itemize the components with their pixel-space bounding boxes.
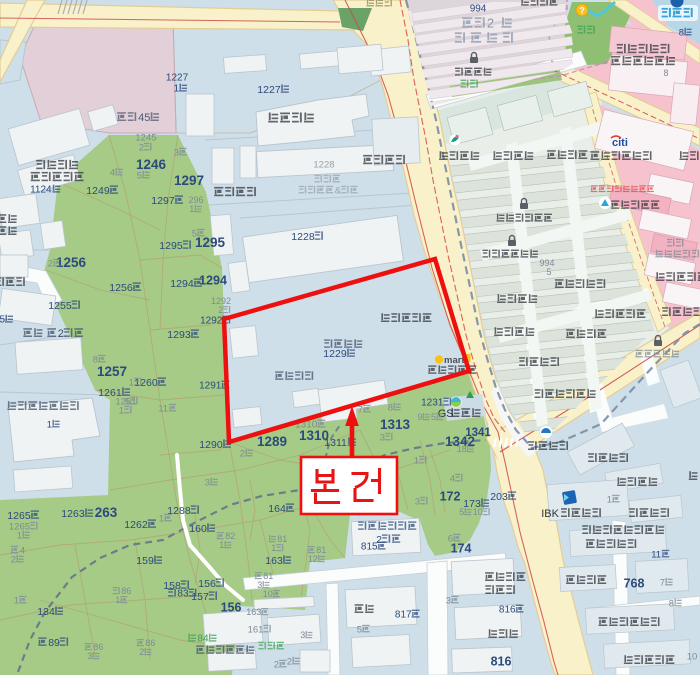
- svg-text:3: 3: [257, 580, 262, 590]
- svg-text:89: 89: [48, 637, 60, 649]
- svg-text:7: 7: [358, 404, 363, 415]
- svg-text:815: 815: [361, 542, 378, 553]
- svg-text:3: 3: [174, 147, 179, 158]
- svg-text:1311: 1311: [324, 437, 347, 449]
- svg-text:84: 84: [197, 634, 209, 645]
- svg-text:1256: 1256: [109, 282, 133, 294]
- svg-text:161: 161: [248, 624, 264, 635]
- svg-text:5: 5: [357, 624, 362, 635]
- svg-text:1227: 1227: [257, 84, 281, 96]
- svg-text:1313: 1313: [380, 417, 411, 432]
- svg-text:1: 1: [189, 204, 194, 214]
- svg-text:2: 2: [58, 328, 64, 340]
- svg-text:5: 5: [459, 507, 464, 517]
- svg-text:156: 156: [221, 601, 242, 615]
- svg-text:1249: 1249: [86, 185, 110, 197]
- svg-text:1: 1: [607, 494, 612, 505]
- svg-text:157: 157: [191, 591, 209, 603]
- svg-text:5: 5: [431, 412, 436, 422]
- svg-text:163: 163: [246, 607, 261, 617]
- svg-text:4: 4: [20, 545, 25, 556]
- svg-text:8: 8: [664, 68, 669, 78]
- svg-text:8: 8: [679, 27, 684, 38]
- svg-text:817: 817: [395, 610, 412, 621]
- svg-text:11: 11: [651, 549, 661, 560]
- svg-text:2: 2: [48, 258, 53, 269]
- svg-text:1: 1: [17, 530, 22, 541]
- svg-text:768: 768: [624, 577, 645, 591]
- svg-text:5: 5: [547, 267, 552, 277]
- svg-text:18: 18: [457, 444, 467, 454]
- svg-text:81: 81: [316, 545, 326, 555]
- svg-text:3: 3: [205, 477, 210, 488]
- svg-text:1231: 1231: [421, 398, 444, 409]
- svg-text:163: 163: [265, 555, 283, 567]
- svg-text:816: 816: [499, 605, 516, 616]
- svg-text:5: 5: [0, 315, 6, 326]
- svg-text:2: 2: [218, 305, 223, 315]
- svg-text:IBK: IBK: [541, 508, 559, 520]
- svg-text:4: 4: [110, 167, 115, 178]
- svg-text:1229: 1229: [323, 348, 347, 360]
- svg-text:1227: 1227: [166, 73, 189, 84]
- svg-text:1289: 1289: [257, 434, 287, 449]
- svg-text:263: 263: [95, 505, 118, 520]
- svg-text:1265: 1265: [7, 510, 31, 522]
- svg-text:8: 8: [669, 598, 674, 609]
- svg-text:9: 9: [417, 412, 422, 422]
- svg-text:10: 10: [473, 507, 483, 517]
- svg-text:174: 174: [451, 542, 472, 556]
- svg-text:2: 2: [487, 16, 494, 31]
- svg-text:203: 203: [490, 491, 508, 503]
- svg-text:45: 45: [138, 112, 150, 124]
- svg-text:1: 1: [119, 405, 124, 416]
- svg-text:2: 2: [274, 659, 279, 670]
- svg-text:2: 2: [11, 554, 16, 565]
- svg-text:134: 134: [37, 606, 55, 618]
- svg-text:2: 2: [240, 448, 245, 459]
- svg-text:1291: 1291: [199, 381, 222, 392]
- svg-text:1295: 1295: [159, 240, 183, 252]
- svg-text:994: 994: [470, 4, 487, 15]
- svg-text:1290: 1290: [199, 439, 223, 451]
- svg-text:mart: mart: [444, 355, 465, 366]
- svg-text:2: 2: [287, 656, 292, 667]
- svg-text:2: 2: [139, 647, 144, 657]
- svg-text:1297: 1297: [151, 195, 175, 207]
- svg-text:82: 82: [225, 531, 235, 541]
- svg-text:1: 1: [159, 513, 164, 524]
- svg-text:86: 86: [145, 638, 155, 648]
- svg-text:1294: 1294: [199, 274, 227, 288]
- svg-text:2: 2: [139, 142, 144, 153]
- svg-text:10: 10: [687, 651, 698, 662]
- svg-text:11: 11: [158, 403, 168, 414]
- svg-text:1: 1: [115, 595, 120, 605]
- svg-text:1228: 1228: [313, 159, 334, 170]
- svg-text:?: ?: [579, 6, 585, 16]
- svg-text:1263: 1263: [61, 508, 85, 520]
- svg-text:164: 164: [268, 503, 286, 515]
- svg-text:1228: 1228: [291, 231, 315, 243]
- svg-text:1293: 1293: [167, 329, 191, 341]
- svg-text:1: 1: [414, 455, 419, 466]
- svg-text:3: 3: [300, 630, 305, 640]
- svg-text:citi: citi: [612, 137, 628, 149]
- svg-text:5: 5: [137, 170, 142, 181]
- svg-text:1292: 1292: [200, 316, 223, 327]
- svg-text:159: 159: [136, 555, 154, 567]
- svg-text:816: 816: [491, 655, 512, 669]
- svg-text:12: 12: [308, 554, 318, 564]
- svg-text:1: 1: [129, 377, 134, 388]
- svg-text:1297: 1297: [174, 173, 204, 188]
- svg-text:1257: 1257: [97, 364, 127, 379]
- svg-text:1124: 1124: [30, 185, 52, 196]
- svg-text:7: 7: [660, 577, 665, 588]
- svg-text:3: 3: [87, 651, 92, 661]
- svg-text:1295: 1295: [195, 235, 226, 250]
- svg-text:86: 86: [93, 642, 103, 652]
- svg-text:172: 172: [440, 490, 461, 504]
- svg-text:1: 1: [271, 543, 276, 553]
- svg-text:1256: 1256: [56, 255, 87, 270]
- svg-text:83: 83: [177, 589, 189, 600]
- svg-text:1: 1: [47, 419, 52, 430]
- svg-text:1294: 1294: [170, 278, 194, 290]
- svg-text:3: 3: [380, 432, 385, 443]
- svg-text:156: 156: [198, 578, 216, 590]
- svg-text:1: 1: [14, 595, 19, 606]
- svg-text:160: 160: [189, 523, 207, 535]
- svg-text:&: &: [335, 185, 342, 196]
- svg-text:5: 5: [125, 396, 130, 407]
- svg-text:1262: 1262: [124, 519, 148, 531]
- svg-text:1: 1: [174, 84, 180, 95]
- svg-text:8: 8: [388, 402, 393, 413]
- svg-text:86: 86: [121, 586, 131, 596]
- svg-text:3: 3: [446, 595, 451, 606]
- svg-text:10: 10: [263, 589, 273, 599]
- svg-text:81: 81: [277, 534, 287, 544]
- svg-text:81: 81: [263, 571, 273, 581]
- svg-text:1255: 1255: [48, 300, 72, 312]
- svg-text:1: 1: [219, 540, 224, 550]
- svg-text:4: 4: [450, 473, 455, 484]
- svg-text:3: 3: [415, 496, 420, 507]
